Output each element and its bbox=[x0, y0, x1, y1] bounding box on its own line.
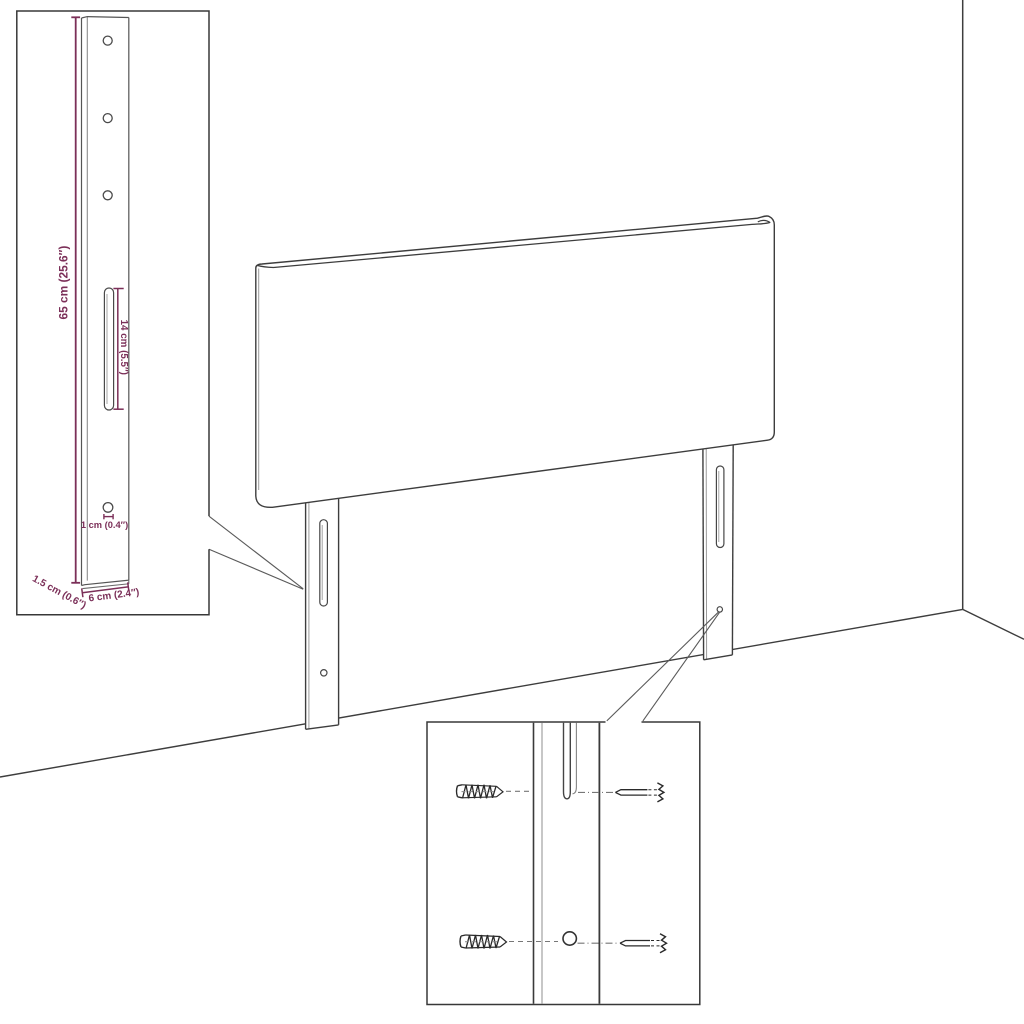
svg-text:14 cm (5.5″): 14 cm (5.5″) bbox=[118, 320, 129, 375]
svg-text:65 cm (25.6″): 65 cm (25.6″) bbox=[57, 246, 71, 320]
svg-text:1 cm (0.4″): 1 cm (0.4″) bbox=[81, 520, 128, 530]
